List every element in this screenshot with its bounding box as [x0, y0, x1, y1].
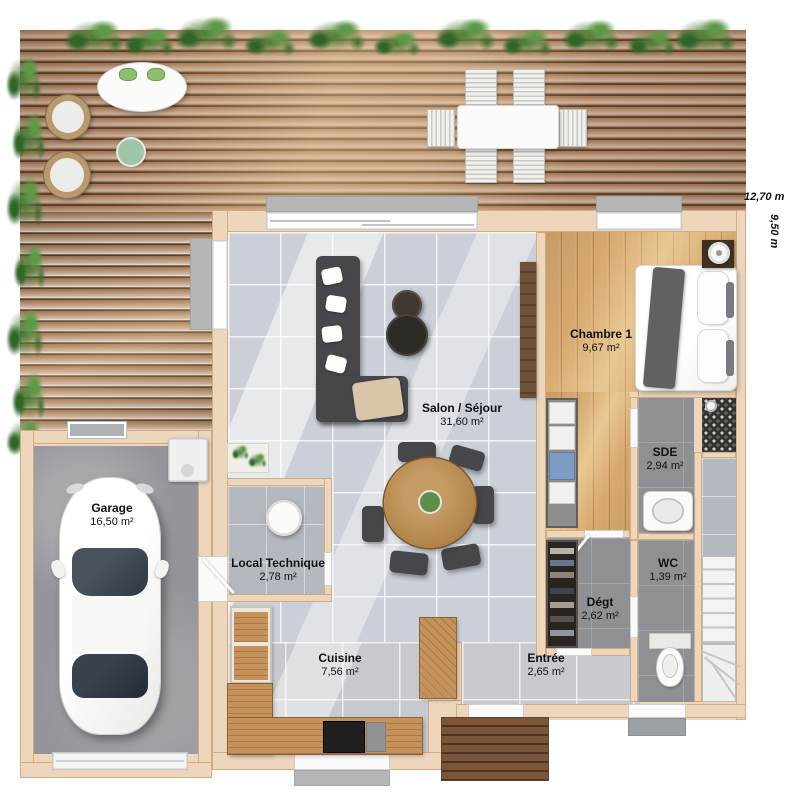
entree-door-mat — [628, 718, 686, 736]
room-label-local-technique: Local Technique 2,78 m² — [231, 556, 325, 585]
dimension-width-label: 12,70 m — [744, 191, 784, 203]
staircase-straight — [702, 556, 736, 644]
plant-icon — [58, 14, 128, 58]
wall-sde-wc — [638, 533, 694, 540]
bed-pillow — [698, 330, 728, 382]
closet-box — [550, 403, 574, 423]
room-area: 16,50 m² — [90, 516, 133, 530]
room-name: Cuisine — [318, 651, 361, 666]
sofa-pillow — [325, 295, 347, 314]
garage-door-line — [56, 760, 184, 762]
chair-cushion — [52, 101, 84, 133]
sde-door-opening — [630, 408, 638, 448]
lt-door-opening — [324, 552, 332, 586]
bay-window-threshold — [266, 196, 478, 212]
salon-south-door — [468, 704, 524, 718]
plant-icon — [8, 104, 48, 168]
room-area: 9,67 m² — [570, 342, 632, 356]
chambre-door-opening — [584, 530, 624, 538]
deck-terrace-left — [20, 212, 212, 432]
wall-stairs-west — [694, 452, 702, 702]
window-rail — [362, 224, 474, 226]
room-label-entree: Entrée 2,65 m² — [527, 651, 564, 680]
wall-shower-south — [702, 452, 736, 458]
garage-wall-east — [198, 430, 212, 778]
table-centerpiece-plant — [420, 492, 440, 512]
accent-pillow — [726, 340, 734, 376]
cuisine-window-door — [294, 752, 390, 770]
kitchen-cabinet — [230, 606, 272, 684]
toilet-seat — [662, 654, 678, 678]
car-roof — [72, 596, 148, 654]
room-name: Local Technique — [231, 556, 325, 571]
degt-wardrobe — [546, 540, 578, 648]
outdoor-lounge-sofa — [98, 63, 186, 111]
water-heater — [266, 500, 302, 536]
clothes — [550, 602, 574, 608]
outdoor-chair — [514, 148, 544, 182]
lamp-center — [716, 250, 722, 256]
stair-landing-floor — [702, 458, 736, 558]
dimension-height-label: 9,50 m — [768, 214, 780, 248]
outdoor-chair — [428, 110, 454, 146]
staircase-winder — [702, 644, 736, 702]
wall-east — [736, 210, 746, 720]
kitchen-sink — [366, 722, 386, 752]
tv-sideboard — [520, 262, 536, 398]
accent-pillow — [726, 282, 734, 318]
outdoor-side-table — [118, 139, 144, 165]
linen-closet — [546, 398, 578, 528]
wall-salon-east — [536, 232, 546, 656]
sofa-blanket — [352, 377, 405, 421]
clothes — [550, 630, 574, 636]
basin-bowl — [652, 498, 684, 524]
bay-window — [266, 212, 478, 230]
floor-plan: Salon / Séjour 31,60 m² Chambre 1 9,67 m… — [0, 0, 800, 800]
wall-chambre-south — [638, 390, 736, 398]
dining-chair — [389, 550, 429, 576]
plant-icon — [556, 14, 624, 56]
room-area: 7,56 m² — [318, 666, 361, 680]
plant-icon — [368, 26, 424, 60]
outdoor-chair — [514, 70, 544, 104]
room-name: Dégt — [581, 595, 618, 610]
kitchen-counter-right — [420, 618, 456, 698]
coffee-table-large — [386, 314, 428, 356]
room-name: WC — [649, 556, 686, 571]
shower-head — [705, 400, 717, 412]
plant-icon — [10, 236, 48, 296]
room-name: Garage — [90, 501, 133, 516]
laundry-basket — [550, 453, 574, 479]
clothes — [550, 616, 574, 622]
salon-side-window — [212, 240, 228, 330]
cushion — [120, 69, 136, 80]
room-label-garage: Garage 16,50 m² — [90, 501, 133, 530]
room-area: 1,39 m² — [649, 571, 686, 585]
wc-door-opening — [630, 596, 638, 638]
room-area: 2,62 m² — [581, 610, 618, 624]
room-label-wc: WC 1,39 m² — [649, 556, 686, 585]
chambre-window — [596, 212, 682, 230]
room-name: Entrée — [527, 651, 564, 666]
outdoor-chair — [466, 70, 496, 104]
room-label-cuisine: Cuisine 7,56 m² — [318, 651, 361, 680]
car-windshield — [72, 548, 148, 596]
garage-window — [68, 422, 126, 438]
appliance-dial — [181, 464, 194, 477]
wall-lt-south — [225, 594, 332, 602]
room-label-sde: SDE 2,94 m² — [646, 445, 683, 474]
closet-box — [550, 427, 574, 449]
room-area: 2,78 m² — [231, 571, 325, 585]
window-rail — [270, 220, 390, 222]
room-name: SDE — [646, 445, 683, 460]
plant-icon — [168, 10, 242, 56]
clothes — [550, 560, 574, 566]
toilet-bowl — [657, 648, 683, 686]
plant-icon — [428, 12, 500, 56]
garage-lt-door-opening — [198, 556, 228, 602]
room-area: 2,65 m² — [527, 666, 564, 680]
garage-wall-west — [20, 430, 34, 778]
cushion — [148, 69, 164, 80]
closet-box — [550, 483, 574, 503]
cabinet-shelf — [234, 612, 268, 642]
garage-appliance — [168, 438, 208, 482]
chair-cushion — [50, 158, 84, 192]
room-name: Chambre 1 — [570, 327, 632, 342]
clothes — [550, 588, 574, 594]
room-area: 31,60 m² — [422, 416, 502, 430]
room-label-chambre: Chambre 1 9,67 m² — [570, 327, 632, 356]
garage-door — [52, 752, 188, 770]
dining-chair — [362, 506, 384, 542]
outdoor-chair — [560, 110, 586, 146]
room-label-degt: Dégt 2,62 m² — [581, 595, 618, 624]
wall-lt-north — [225, 478, 332, 486]
room-label-salon: Salon / Séjour 31,60 m² — [422, 401, 502, 430]
sofa-pillow — [321, 325, 343, 343]
chambre-window-threshold — [596, 196, 682, 212]
clothes — [550, 548, 574, 554]
dining-table — [384, 458, 476, 548]
outdoor-round-chair — [44, 152, 90, 198]
plant-icon — [238, 24, 300, 60]
plant-icon — [2, 48, 44, 108]
washbasin — [644, 492, 692, 530]
plant-icon — [668, 12, 740, 58]
outdoor-chair — [466, 148, 496, 182]
outdoor-round-chair — [46, 95, 90, 139]
bedside-lamp — [708, 242, 730, 264]
entry-porch-deck — [442, 718, 548, 780]
toilet-tank — [650, 634, 690, 648]
cuisine-step — [294, 770, 390, 786]
cabinet-shelf — [234, 646, 268, 680]
side-window-threshold — [190, 238, 212, 330]
bed-pillow — [698, 272, 728, 324]
outdoor-dining-table — [458, 106, 558, 148]
room-name: Salon / Séjour — [422, 401, 502, 416]
clothes — [550, 572, 574, 578]
car-rear-window — [72, 654, 148, 698]
plant-icon — [496, 24, 556, 60]
plant-icon — [300, 14, 370, 56]
plant-icon — [2, 168, 46, 234]
room-area: 2,94 m² — [646, 460, 683, 474]
entree-front-door — [628, 704, 686, 718]
potted-plant-icon — [246, 450, 268, 470]
plant-icon — [2, 300, 46, 364]
cooktop — [324, 722, 364, 752]
